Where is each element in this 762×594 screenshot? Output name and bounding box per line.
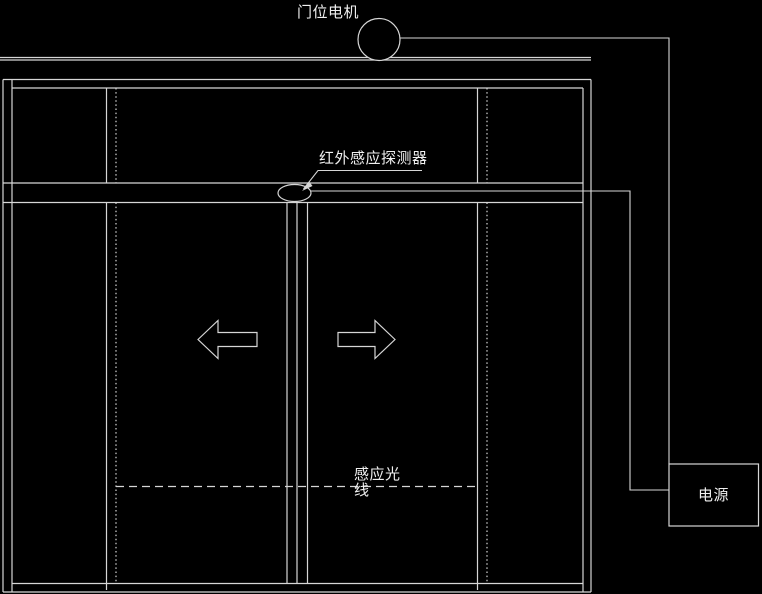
door-open-left-arrow-icon	[198, 321, 257, 359]
door-motor-circle-icon	[358, 19, 400, 61]
sensor-label: 红外感应探测器	[319, 149, 428, 167]
door-open-right-arrow-icon	[338, 321, 395, 359]
beam-label-line2: 线	[354, 482, 370, 499]
power-label: 电源	[698, 487, 729, 504]
center-meeting-stiles	[287, 203, 308, 584]
door-schematic-drawing: 门位电机 红外感应探测器 感应光 线 电源	[0, 0, 762, 594]
motor-label: 门位电机	[297, 4, 359, 21]
sensor-leader-line	[302, 171, 422, 192]
motor-power-wire	[400, 38, 669, 464]
door-schematic-canvas: 门位电机 红外感应探测器 感应光 线 电源	[0, 0, 762, 594]
header-track-lines	[0, 58, 591, 61]
beam-label-line1: 感应光	[354, 465, 401, 483]
